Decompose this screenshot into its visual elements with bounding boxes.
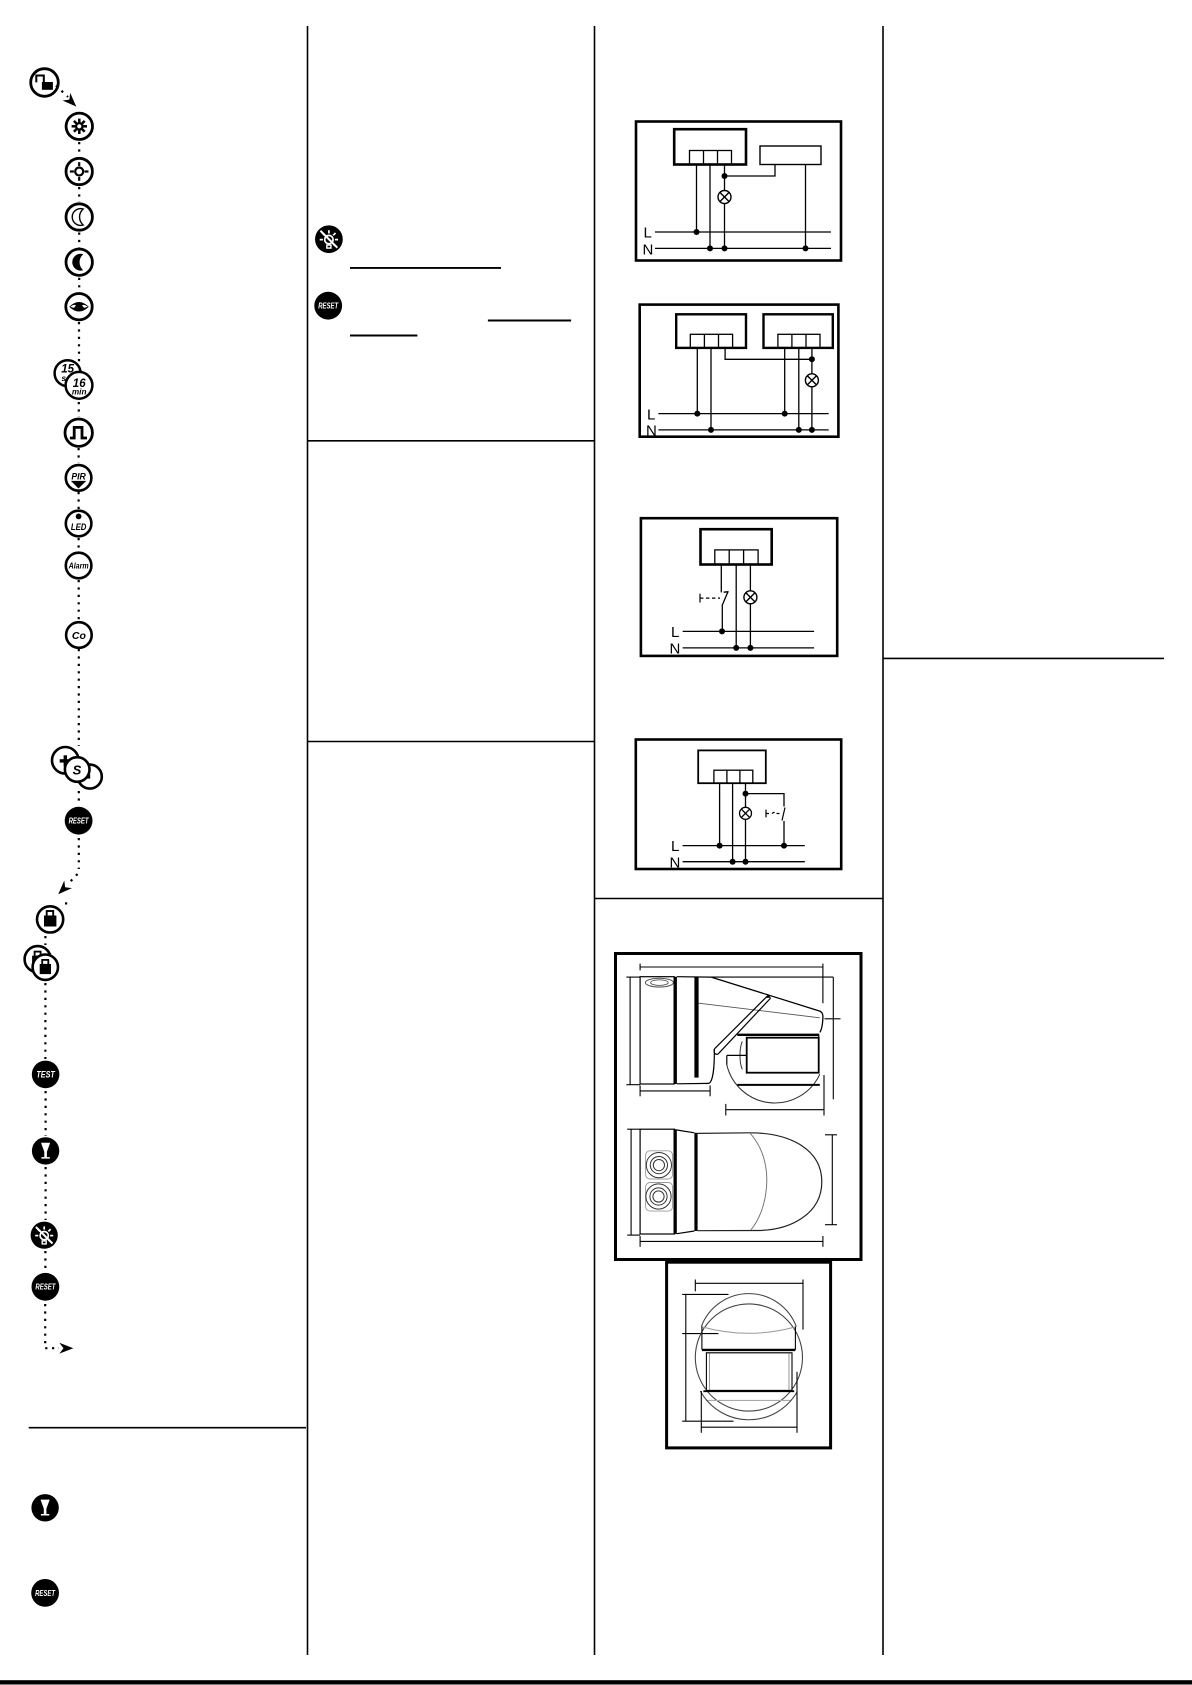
svg-text:Alarm: Alarm bbox=[68, 562, 89, 571]
svg-text:L: L bbox=[671, 624, 679, 641]
svg-text:PIR: PIR bbox=[71, 471, 86, 481]
svg-text:N: N bbox=[643, 241, 654, 258]
svg-text:min: min bbox=[72, 387, 87, 396]
svg-text:L: L bbox=[644, 225, 652, 242]
svg-text:S: S bbox=[73, 762, 82, 777]
svg-text:Co: Co bbox=[72, 630, 87, 642]
svg-text:N: N bbox=[646, 423, 657, 440]
svg-text:LED: LED bbox=[71, 522, 87, 532]
svg-text:L: L bbox=[647, 406, 655, 423]
svg-text:N: N bbox=[670, 854, 681, 871]
svg-text:N: N bbox=[670, 641, 681, 658]
svg-text:L: L bbox=[671, 838, 679, 855]
svg-text:TEST: TEST bbox=[36, 1070, 55, 1080]
